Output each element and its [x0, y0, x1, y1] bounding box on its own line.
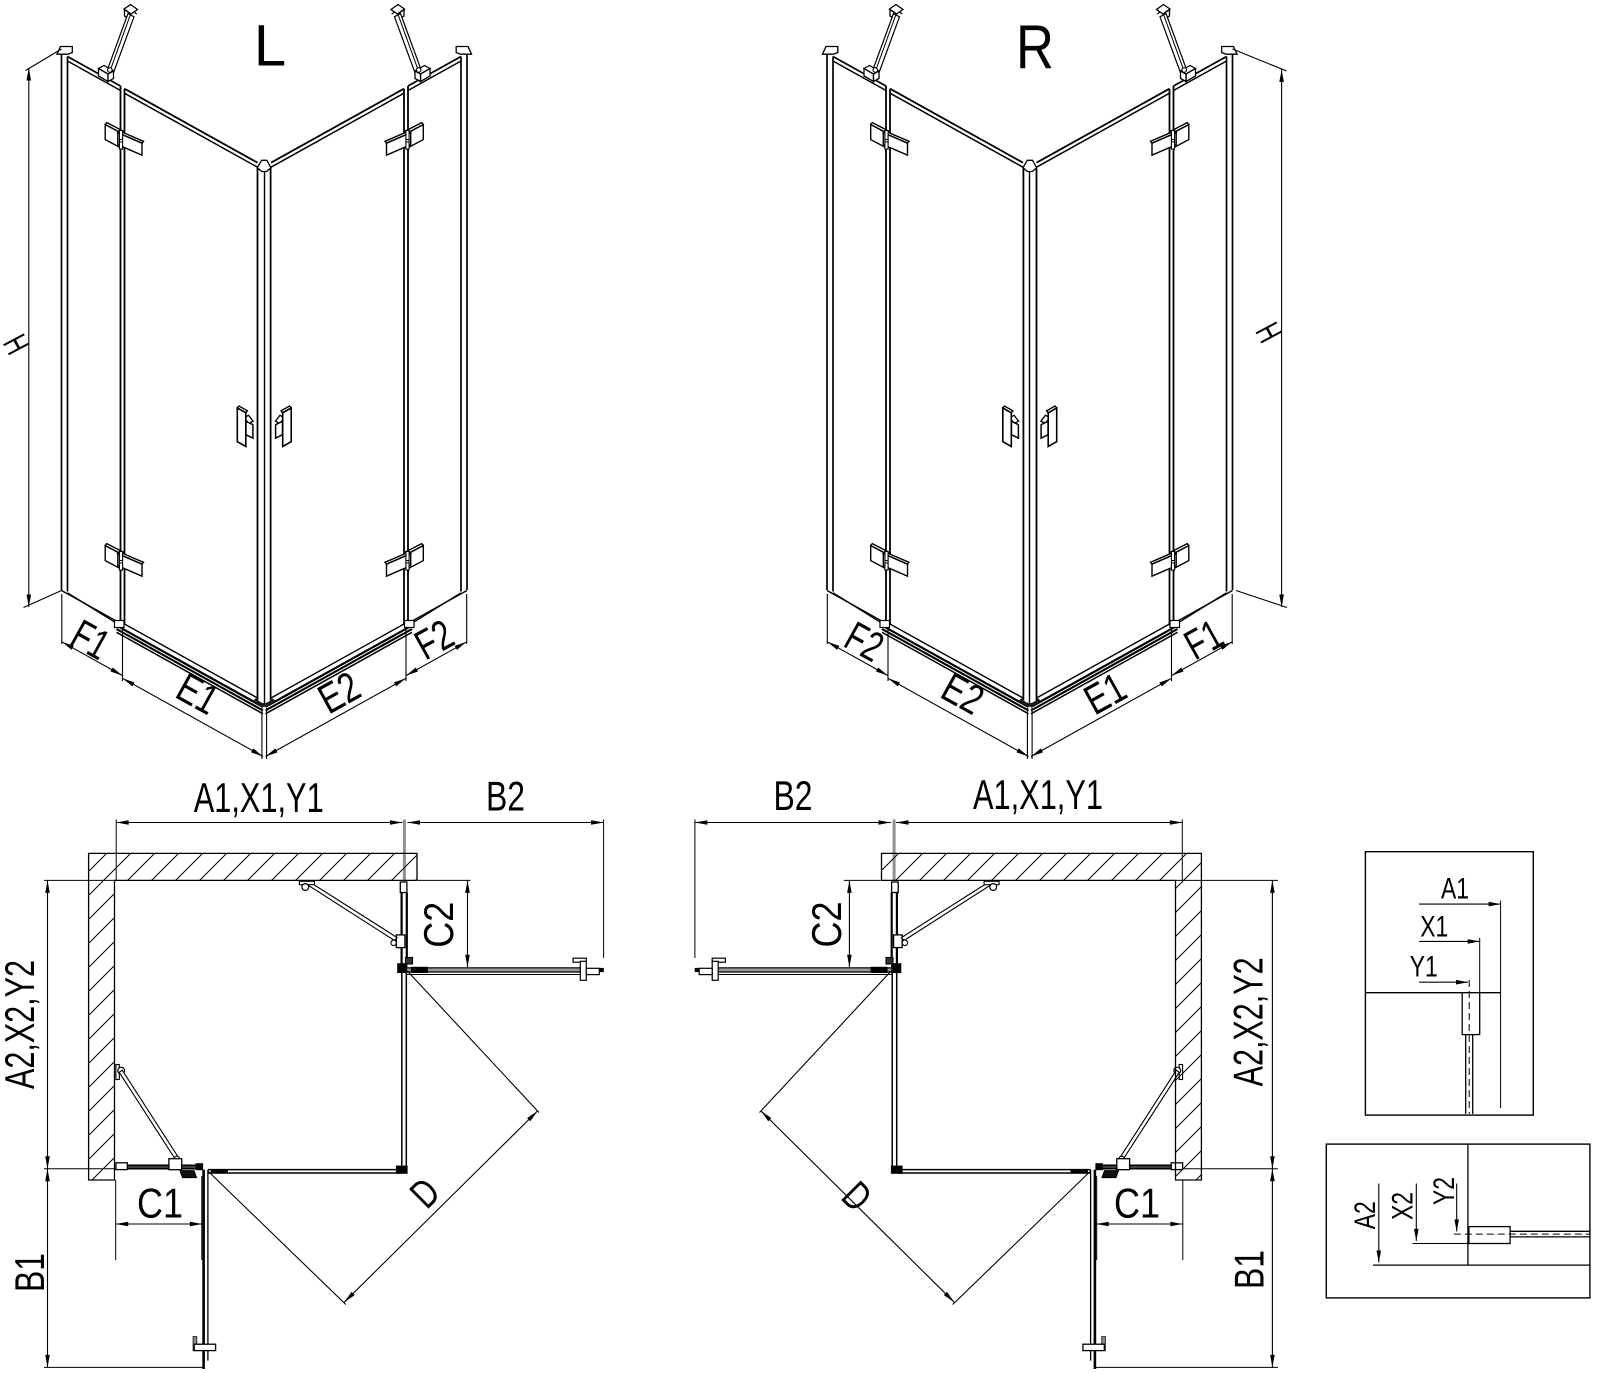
svg-text:E2: E2 [934, 663, 992, 723]
svg-text:A2,X2,Y2: A2,X2,Y2 [1224, 957, 1271, 1086]
svg-text:X2: X2 [1387, 1192, 1420, 1220]
svg-text:C2: C2 [415, 902, 462, 948]
svg-text:R: R [1016, 14, 1054, 83]
svg-text:A2: A2 [1349, 1201, 1382, 1229]
svg-text:A1,X1,Y1: A1,X1,Y1 [973, 771, 1103, 818]
svg-text:A1: A1 [1441, 873, 1469, 906]
svg-text:Y1: Y1 [1410, 951, 1438, 984]
svg-text:B1: B1 [1226, 1250, 1273, 1289]
svg-text:D: D [402, 1170, 449, 1217]
svg-text:L: L [254, 14, 286, 79]
svg-text:C1: C1 [1114, 1180, 1160, 1227]
svg-text:D: D [833, 1174, 880, 1221]
svg-text:C2: C2 [803, 902, 850, 948]
svg-text:H: H [0, 329, 36, 361]
svg-text:C1: C1 [137, 1180, 183, 1227]
svg-text:B2: B2 [774, 772, 813, 819]
svg-text:Y2: Y2 [1428, 1177, 1461, 1205]
svg-text:E1: E1 [169, 663, 227, 723]
svg-text:E1: E1 [1076, 663, 1134, 723]
svg-text:H: H [1248, 317, 1289, 349]
svg-text:B2: B2 [486, 773, 525, 820]
svg-text:A1,X1,Y1: A1,X1,Y1 [194, 774, 324, 821]
svg-text:A2,X2,Y2: A2,X2,Y2 [0, 960, 43, 1089]
svg-text:X1: X1 [1420, 911, 1448, 944]
svg-text:B1: B1 [6, 1253, 53, 1292]
